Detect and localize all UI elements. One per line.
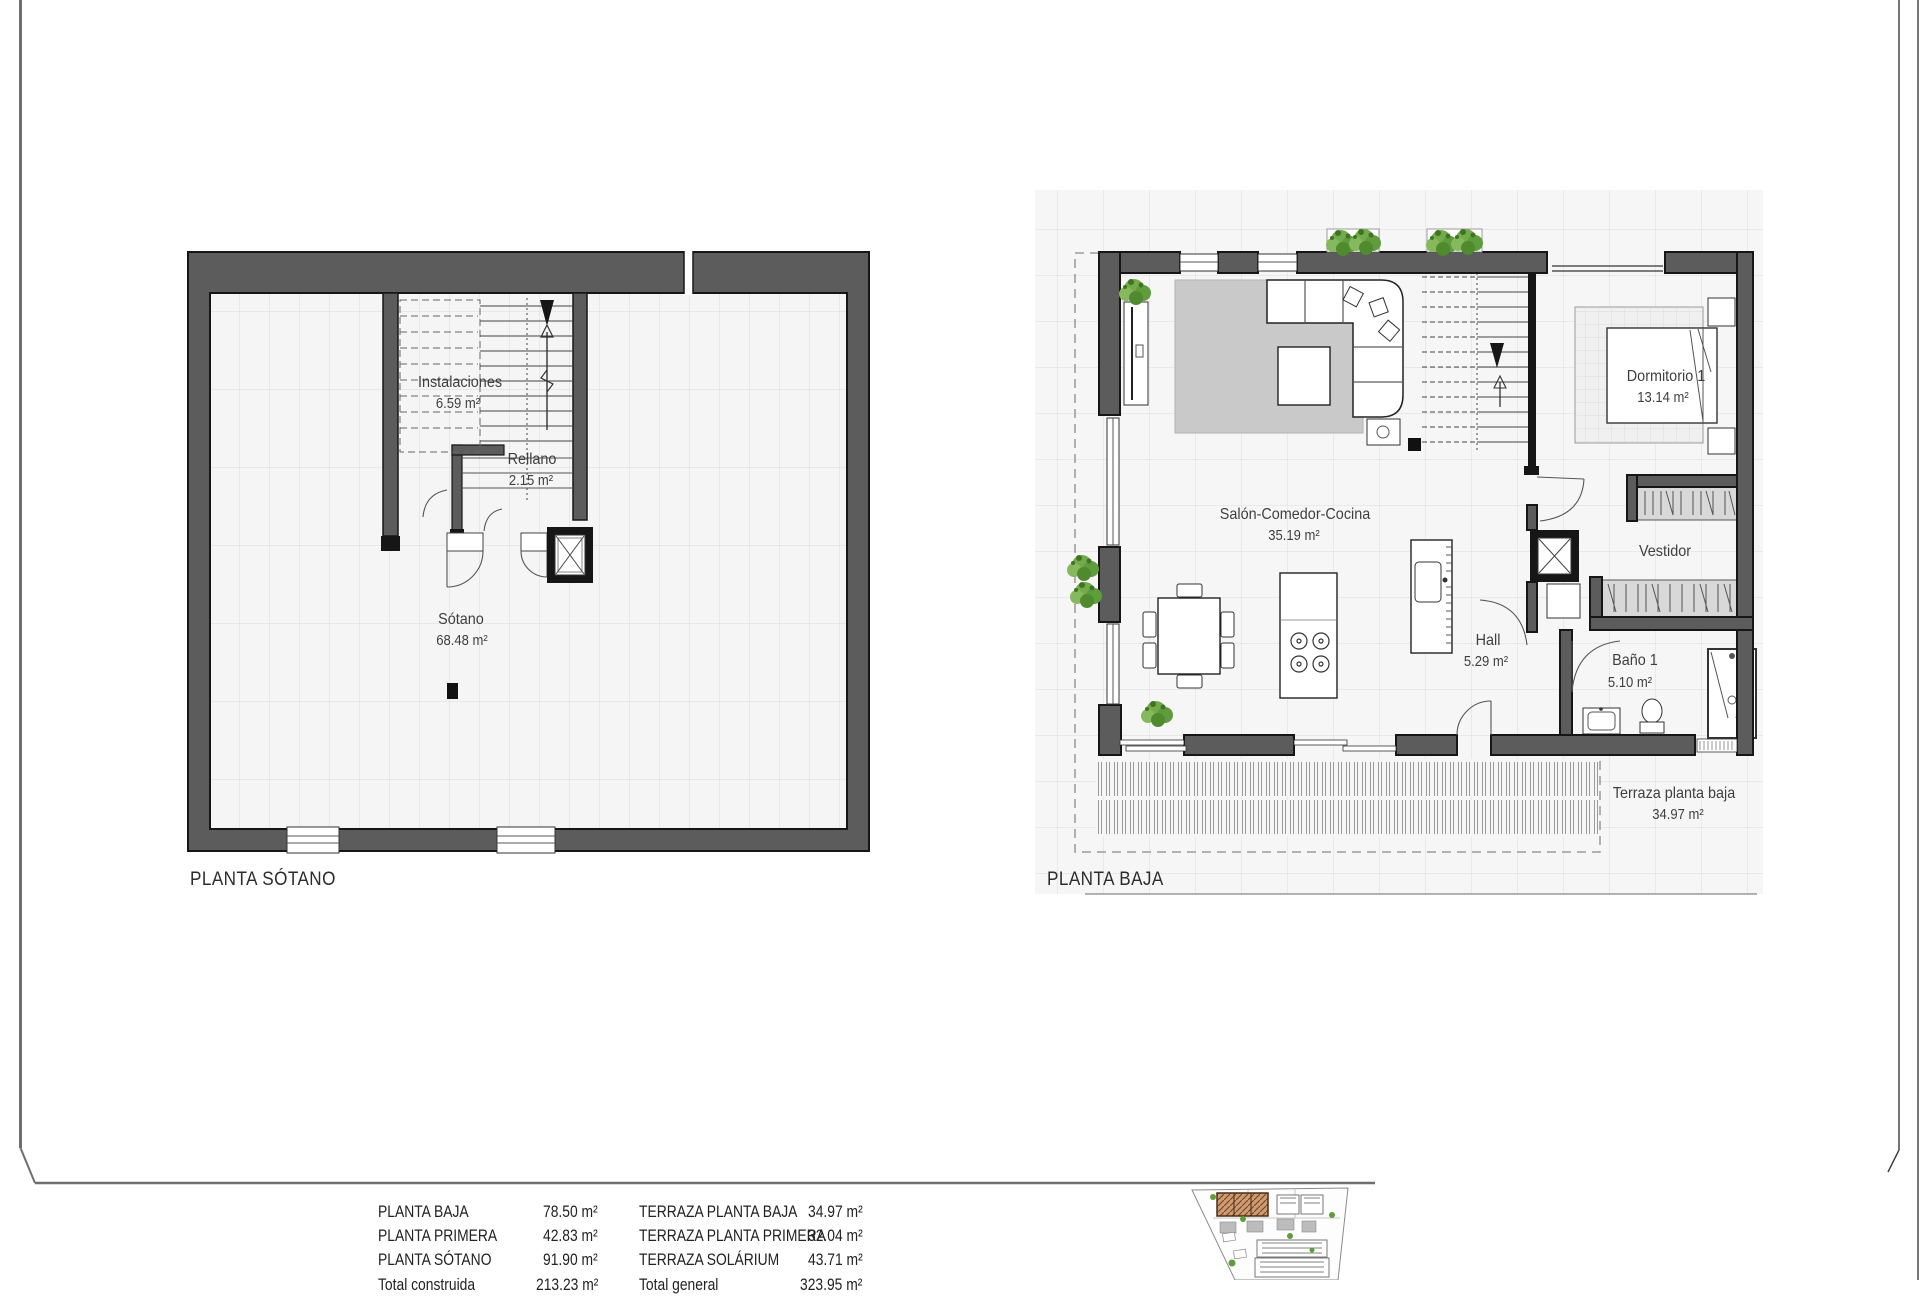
room-area-hall: 5.29 m² <box>1464 655 1508 670</box>
stair-right-wall <box>573 293 587 520</box>
table-value: 42.83 m² <box>543 1227 598 1246</box>
room-label-bano1: Baño 1 <box>1612 653 1658 669</box>
sotano-floor <box>210 293 847 829</box>
room-area-bano1: 5.10 m² <box>1608 676 1652 691</box>
baja-pillar <box>1408 438 1421 451</box>
kitchen-island <box>1280 573 1337 698</box>
table-label: TERRAZA PLANTA PRIMERA <box>639 1227 826 1246</box>
room-label-instalaciones: Instalaciones <box>418 375 502 391</box>
room-label-sotano: Sótano <box>438 612 484 628</box>
room-label-hall: Hall <box>1476 633 1501 649</box>
rellano-wall-v <box>452 445 462 533</box>
tv-unit <box>1124 302 1148 405</box>
room-label-terraza: Terraza planta baja <box>1613 786 1735 802</box>
table-label: TERRAZA PLANTA BAJA <box>639 1203 797 1222</box>
room-area-instalaciones: 6.59 m² <box>436 397 480 412</box>
frame-right-diagonal <box>1888 1150 1899 1172</box>
sotano-elevator <box>547 527 593 583</box>
rellano-wall-h <box>452 445 504 455</box>
table-value: 34.97 m² <box>808 1203 863 1222</box>
kitchen-sink-counter <box>1411 540 1452 653</box>
room-label-rellano: Rellano <box>508 452 557 468</box>
room-label-dormitorio1: Dormitorio 1 <box>1627 369 1705 385</box>
sotano-pillar <box>447 683 458 699</box>
table-value: 43.71 m² <box>808 1251 863 1270</box>
room-area-sotano: 68.48 m² <box>436 634 488 649</box>
table-value: 91.90 m² <box>543 1251 598 1270</box>
room-area-terraza: 34.97 m² <box>1652 808 1704 823</box>
table-value: 213.23 m² <box>536 1276 598 1295</box>
frame-left-diagonal <box>21 1148 36 1183</box>
room-area-dormitorio1: 13.14 m² <box>1637 391 1689 406</box>
plan-sheet: { "sheet_title": "Floor plan sheet", "pa… <box>0 0 1920 1280</box>
site-plan-inset <box>1180 1185 1360 1280</box>
site-highlighted-unit <box>1217 1193 1268 1216</box>
sotano-partition <box>383 293 398 536</box>
table-label: PLANTA BAJA <box>378 1203 469 1222</box>
plan-sotano-drawing <box>150 235 900 895</box>
caption-planta-baja: PLANTA BAJA <box>1047 869 1164 891</box>
room-label-salon: Salón-Comedor-Cocina <box>1220 507 1370 523</box>
room-area-salon: 35.19 m² <box>1268 529 1320 544</box>
table-label: PLANTA PRIMERA <box>378 1227 497 1246</box>
room-label-vestidor: Vestidor <box>1639 544 1691 560</box>
table-label: Total construida <box>378 1276 475 1295</box>
coffee-table <box>1278 347 1330 405</box>
table-value: 323.95 m² <box>800 1276 862 1295</box>
table-label: Total general <box>639 1276 718 1295</box>
caption-planta-sotano: PLANTA SÓTANO <box>190 869 336 891</box>
room-area-rellano: 2.15 m² <box>509 474 553 489</box>
table-label: TERRAZA SOLÁRIUM <box>639 1251 779 1270</box>
table-value: 32.04 m² <box>808 1227 863 1246</box>
table-label: PLANTA SÓTANO <box>378 1251 491 1270</box>
table-value: 78.50 m² <box>543 1203 598 1222</box>
